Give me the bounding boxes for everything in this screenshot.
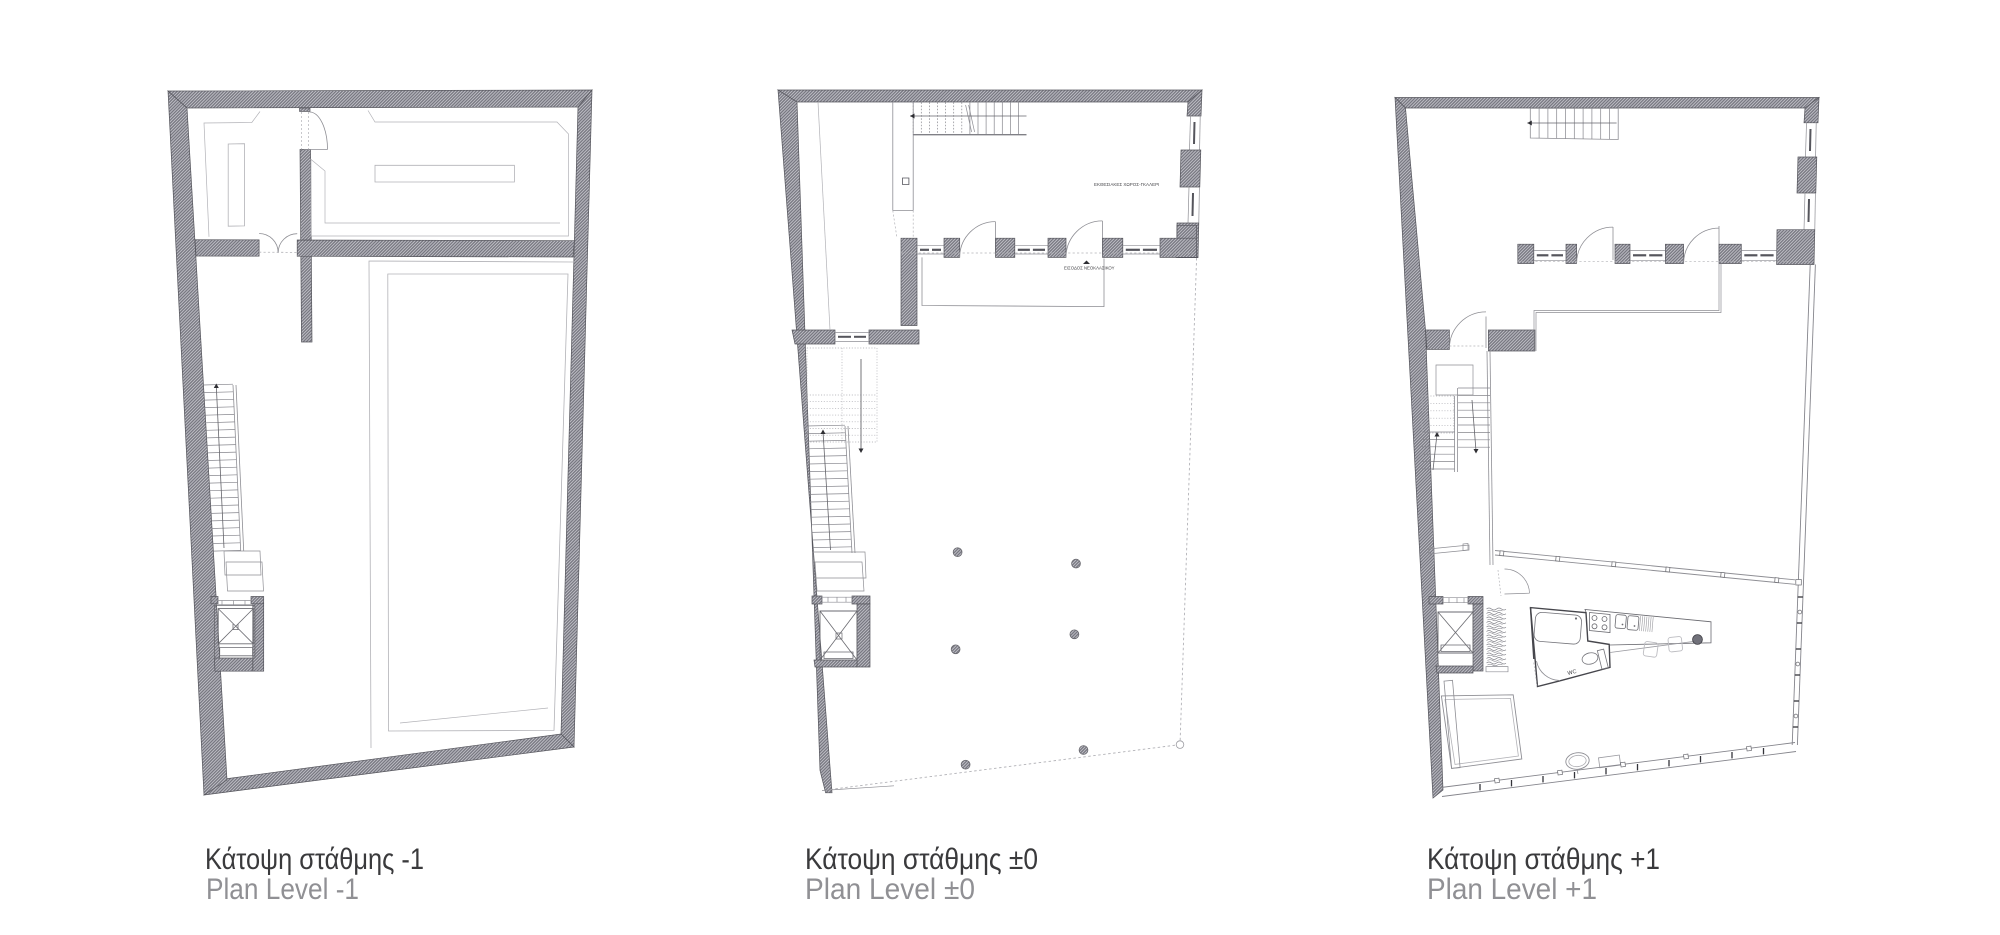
svg-text:Κάτοψη στάθμης -1: Κάτοψη στάθμης -1 xyxy=(205,843,424,876)
svg-text:Plan Level +1: Plan Level +1 xyxy=(1427,873,1597,906)
svg-text:WC: WC xyxy=(1567,669,1577,677)
svg-text:Plan Level ±0: Plan Level ±0 xyxy=(805,873,975,906)
svg-text:Κάτοψη στάθμης +1: Κάτοψη στάθμης +1 xyxy=(1427,843,1660,876)
svg-text:ΕΙΣΟΔΟΣ ΝΕΟΚΛΑΣΙΚΟΥ: ΕΙΣΟΔΟΣ ΝΕΟΚΛΑΣΙΚΟΥ xyxy=(1064,266,1115,271)
svg-text:Κάτοψη στάθμης ±0: Κάτοψη στάθμης ±0 xyxy=(805,843,1038,876)
svg-text:Plan Level -1: Plan Level -1 xyxy=(206,873,359,906)
svg-text:ΕΚΘΕΣΙΑΚΕΣ ΧΩΡΟΣ-ΓΚΑΛΕΡΙ: ΕΚΘΕΣΙΑΚΕΣ ΧΩΡΟΣ-ΓΚΑΛΕΡΙ xyxy=(1094,182,1159,187)
